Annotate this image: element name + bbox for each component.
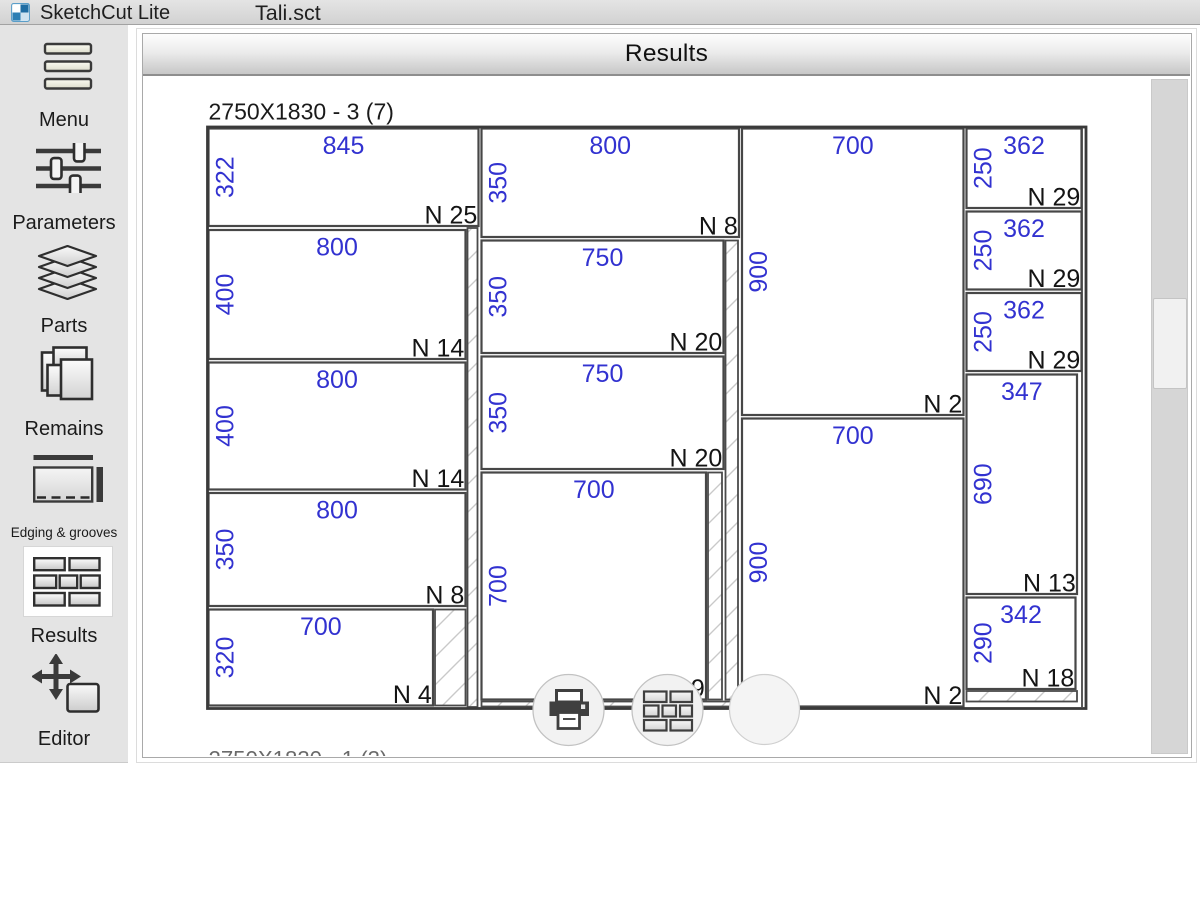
svg-text:N 14: N 14 <box>411 335 464 363</box>
svg-text:900: 900 <box>745 542 773 584</box>
svg-text:400: 400 <box>212 405 240 447</box>
svg-text:N 29: N 29 <box>1027 347 1080 375</box>
svg-text:N 29: N 29 <box>1027 265 1080 293</box>
svg-text:290: 290 <box>970 622 998 664</box>
svg-text:700: 700 <box>832 422 874 450</box>
svg-text:347: 347 <box>1001 378 1043 406</box>
svg-text:700: 700 <box>573 476 615 504</box>
svg-text:N 18: N 18 <box>1021 665 1074 693</box>
svg-text:845: 845 <box>323 132 365 160</box>
svg-text:750: 750 <box>582 244 624 272</box>
svg-text:N 20: N 20 <box>669 445 722 473</box>
svg-text:342: 342 <box>1000 601 1042 629</box>
svg-text:N 8: N 8 <box>699 213 738 241</box>
svg-text:320: 320 <box>212 637 240 679</box>
svg-text:800: 800 <box>316 497 358 525</box>
svg-text:362: 362 <box>1003 297 1045 325</box>
svg-text:700: 700 <box>485 565 513 607</box>
svg-text:N 25: N 25 <box>424 202 477 230</box>
svg-text:N 29: N 29 <box>1027 184 1080 212</box>
svg-text:N 13: N 13 <box>1023 570 1076 598</box>
svg-text:900: 900 <box>745 251 773 293</box>
svg-text:N 8: N 8 <box>425 582 464 610</box>
svg-text:N 4: N 4 <box>393 681 432 709</box>
svg-text:700: 700 <box>300 613 342 641</box>
svg-text:N 2: N 2 <box>923 391 962 419</box>
svg-text:350: 350 <box>212 529 240 571</box>
svg-text:N 2: N 2 <box>923 682 962 710</box>
svg-text:800: 800 <box>316 366 358 394</box>
svg-text:362: 362 <box>1003 215 1045 243</box>
svg-text:250: 250 <box>970 311 998 353</box>
svg-text:322: 322 <box>212 156 240 198</box>
svg-text:350: 350 <box>485 276 513 318</box>
svg-text:700: 700 <box>832 132 874 160</box>
svg-text:800: 800 <box>589 132 631 160</box>
svg-text:N 14: N 14 <box>411 465 464 493</box>
svg-text:800: 800 <box>316 234 358 262</box>
svg-text:362: 362 <box>1003 132 1045 160</box>
svg-text:250: 250 <box>970 230 998 272</box>
svg-text:350: 350 <box>485 162 513 204</box>
svg-text:250: 250 <box>970 147 998 189</box>
svg-text:690: 690 <box>970 463 998 505</box>
svg-text:750: 750 <box>582 360 624 388</box>
svg-text:2750X1830 - 1 (3): 2750X1830 - 1 (3) <box>209 747 388 757</box>
svg-text:350: 350 <box>485 392 513 434</box>
svg-text:2750X1830 - 3 (7): 2750X1830 - 3 (7) <box>209 99 394 125</box>
svg-text:400: 400 <box>212 274 240 316</box>
svg-text:N 20: N 20 <box>669 329 722 357</box>
